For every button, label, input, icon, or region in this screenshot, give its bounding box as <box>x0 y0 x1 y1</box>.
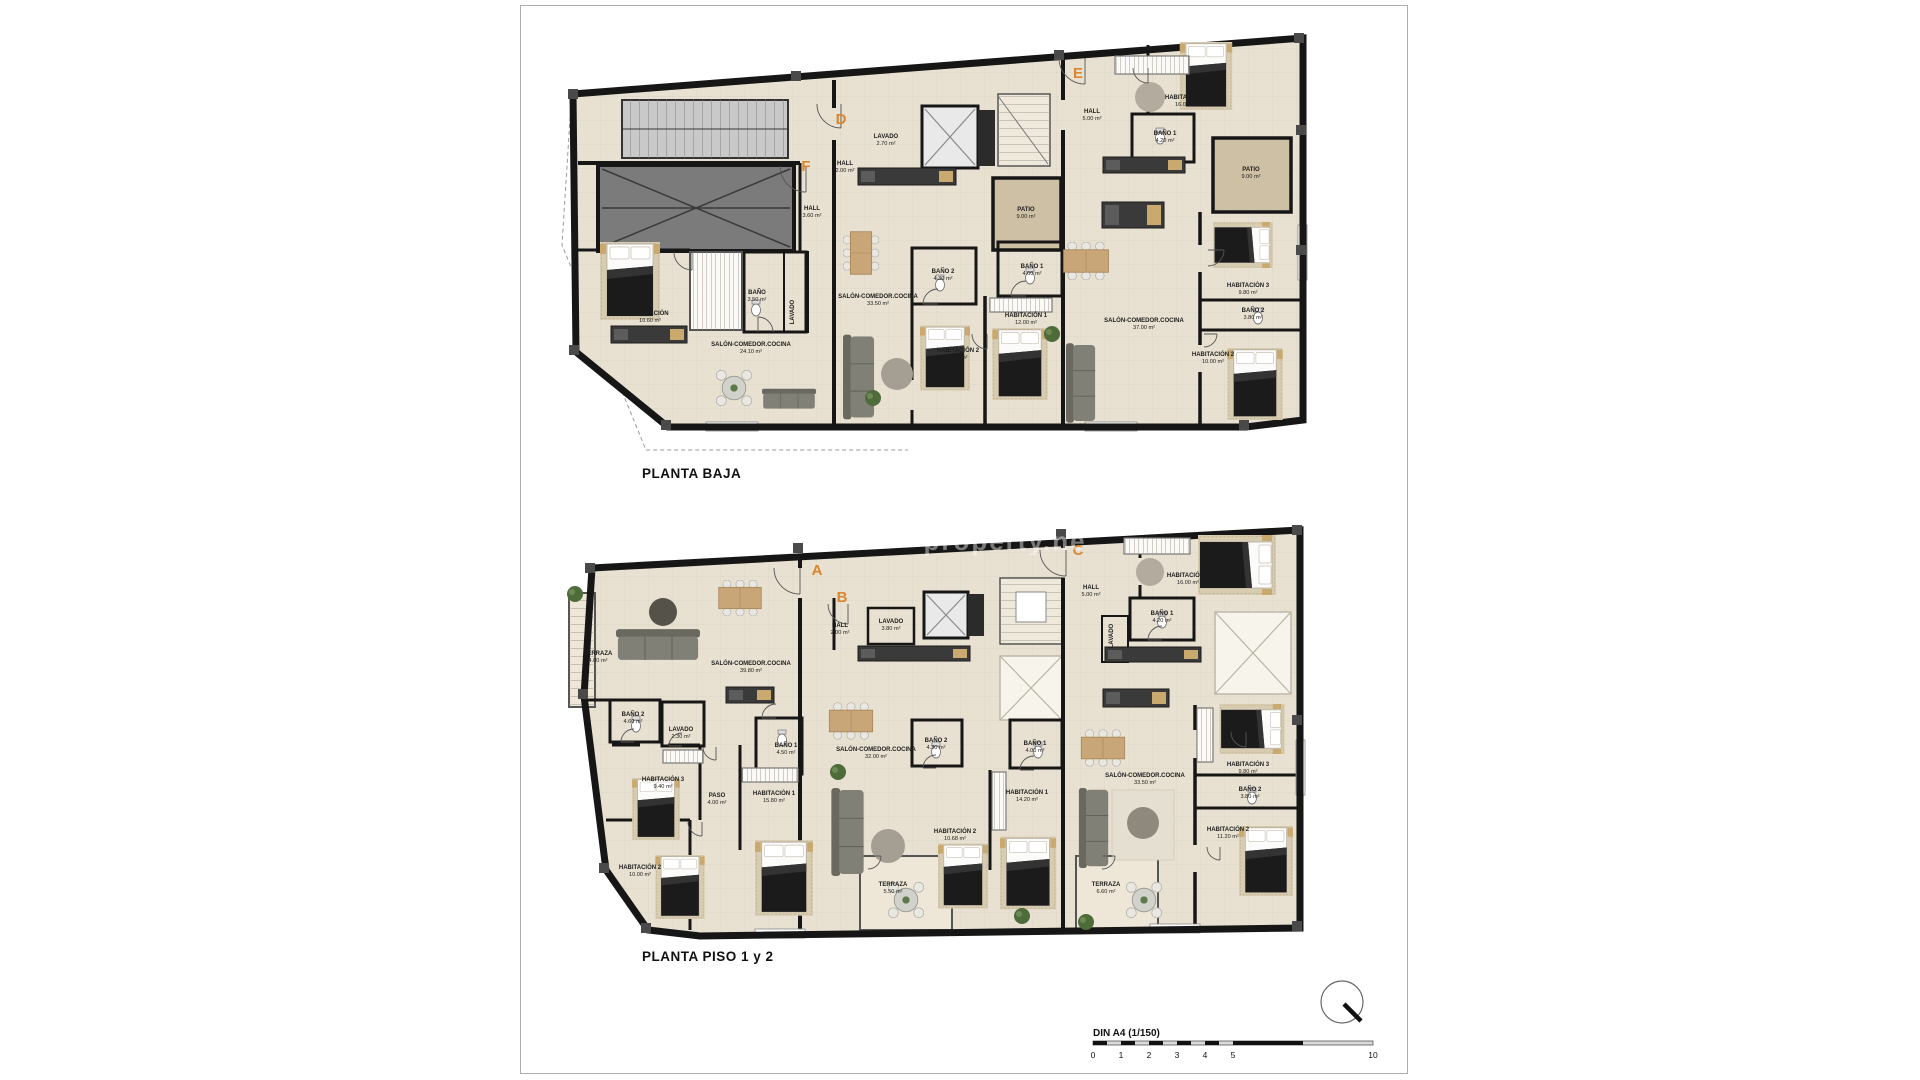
pillar <box>1296 245 1306 255</box>
bed-icon <box>1220 704 1285 754</box>
room-label: HALL5.00 m² <box>1083 109 1102 122</box>
bed-icon <box>1227 348 1282 420</box>
scale-tick: 10 <box>1368 1050 1378 1060</box>
pillar <box>569 345 579 355</box>
scale-bar-label: DIN A4 (1/150) <box>1093 1028 1160 1039</box>
scale-tick: 3 <box>1175 1050 1180 1060</box>
unit-letter: B <box>837 589 848 606</box>
kitchen-appliance <box>1108 650 1122 659</box>
scale-tick: 1 <box>1119 1050 1124 1060</box>
plant-icon <box>1044 326 1060 342</box>
room-label: LAVADO2.70 m² <box>874 134 899 147</box>
room-label: LAVADO2.30 m² <box>669 727 694 740</box>
table-icon <box>829 703 872 740</box>
room-label: LAVADO <box>790 299 796 324</box>
plant-icon <box>569 589 575 595</box>
table-icon <box>843 232 879 275</box>
kitchen-appliance <box>1105 205 1119 225</box>
plan-title-planta-baja: PLANTA BAJA <box>642 466 741 481</box>
kitchen-appliance <box>1106 692 1120 704</box>
room-label: HALL2.00 m² <box>831 623 850 636</box>
drawing-sheet-page: HALL2.00 m²LAVADO2.70 m²HALL3.60 m²BAÑO3… <box>0 0 1920 1080</box>
staircase <box>622 100 788 158</box>
kitchen-appliance <box>1152 692 1166 704</box>
rug <box>1136 558 1164 586</box>
sofa-icon <box>831 788 863 876</box>
unit-letter: D <box>836 111 847 128</box>
kitchen-appliance <box>757 690 771 700</box>
kitchen-appliance <box>1147 205 1161 225</box>
bed-icon <box>1198 535 1276 595</box>
plant-icon <box>1016 911 1022 917</box>
bed-icon <box>1239 826 1293 896</box>
elevator <box>924 592 984 638</box>
pillar <box>1296 125 1306 135</box>
room-label: HALL5.00 m² <box>1082 585 1101 598</box>
kitchen-appliance <box>939 171 953 182</box>
plant-icon <box>867 393 873 399</box>
wardrobe-hatch <box>1115 56 1189 74</box>
pillar <box>599 863 609 873</box>
kitchen-appliance <box>1184 650 1198 659</box>
plant-icon <box>830 764 846 780</box>
floor-plan-drawing: HALL2.00 m²LAVADO2.70 m²HALL3.60 m²BAÑO3… <box>0 0 1920 1080</box>
pillar <box>1292 921 1302 931</box>
plant-icon <box>1078 914 1094 930</box>
wardrobe-hatch <box>663 750 703 763</box>
room-label: PATIO9.00 m² <box>1017 207 1036 220</box>
pillar <box>1292 715 1302 725</box>
kitchen-appliance <box>1168 160 1182 170</box>
room-label: PATIO9.00 m² <box>1242 167 1261 180</box>
plant-icon <box>832 767 838 773</box>
north-arrow-icon <box>1321 981 1363 1023</box>
wardrobe-hatch <box>690 252 742 330</box>
pillar <box>1294 33 1304 43</box>
pillar <box>791 71 801 81</box>
unit-letter: A <box>812 562 823 579</box>
plant-icon <box>1014 908 1030 924</box>
sofa-icon <box>843 335 874 420</box>
bed-icon <box>1213 222 1273 268</box>
room-label: LAVADO3.80 m² <box>879 619 904 632</box>
rug <box>1135 82 1165 112</box>
sofa-icon <box>762 389 816 409</box>
sofa-icon <box>616 629 700 660</box>
elevator <box>922 106 995 168</box>
bed-icon <box>600 242 660 320</box>
pillar <box>1292 525 1302 535</box>
wardrobe-hatch <box>990 298 1052 312</box>
ramp-zone <box>598 165 794 251</box>
pillar <box>568 89 578 99</box>
wardrobe-hatch <box>742 768 798 782</box>
sofa-icon <box>1066 343 1095 422</box>
unit-letter: F <box>801 158 810 175</box>
plant-icon <box>1046 329 1052 335</box>
wardrobe-hatch <box>1124 538 1190 554</box>
scale-tick: 2 <box>1147 1050 1152 1060</box>
room-label: HALL2.00 m² <box>836 161 855 174</box>
plan-title-planta-piso: PLANTA PISO 1 y 2 <box>642 949 774 964</box>
kitchen-appliance <box>670 329 684 340</box>
pillar <box>793 543 803 553</box>
plant-icon <box>567 586 583 602</box>
kitchen-appliance <box>729 690 743 700</box>
room-label: PASO4.00 m² <box>708 793 727 806</box>
kitchen-appliance <box>1106 160 1120 170</box>
watermark: property.ne <box>923 526 1086 556</box>
kitchen-appliance <box>861 649 875 658</box>
scale-tick: 5 <box>1231 1050 1236 1060</box>
pillar <box>1239 420 1249 430</box>
rug <box>871 829 905 863</box>
pillar <box>578 689 588 699</box>
scale-tick: 0 <box>1091 1050 1096 1060</box>
kitchen-appliance <box>614 329 628 340</box>
table-icon <box>719 580 762 616</box>
toilet-icon <box>752 304 761 316</box>
staircase <box>1000 578 1064 644</box>
plant-icon <box>1080 917 1086 923</box>
pillar <box>585 563 595 573</box>
rug <box>1127 807 1159 839</box>
room-label: LAVADO <box>1109 623 1115 648</box>
plant-icon <box>865 390 881 406</box>
rug <box>649 598 677 626</box>
room-label: HALL3.60 m² <box>803 206 822 219</box>
pillar <box>661 420 671 430</box>
table-icon <box>1081 730 1124 767</box>
bed-icon <box>755 840 813 915</box>
table-icon <box>1064 242 1109 280</box>
unit-letter: E <box>1073 65 1083 82</box>
bed-icon <box>992 328 1047 400</box>
pillar <box>641 923 651 933</box>
bed-icon <box>938 844 988 909</box>
toilet-icon <box>778 730 786 734</box>
kitchen-appliance <box>953 649 967 658</box>
wardrobe-hatch <box>1197 708 1213 762</box>
staircase <box>998 94 1050 166</box>
scale-tick: 4 <box>1203 1050 1208 1060</box>
wardrobe-hatch <box>992 772 1006 830</box>
bed-icon <box>1000 837 1056 910</box>
bed-icon <box>655 855 704 919</box>
rug <box>881 358 913 390</box>
kitchen-appliance <box>861 171 875 182</box>
